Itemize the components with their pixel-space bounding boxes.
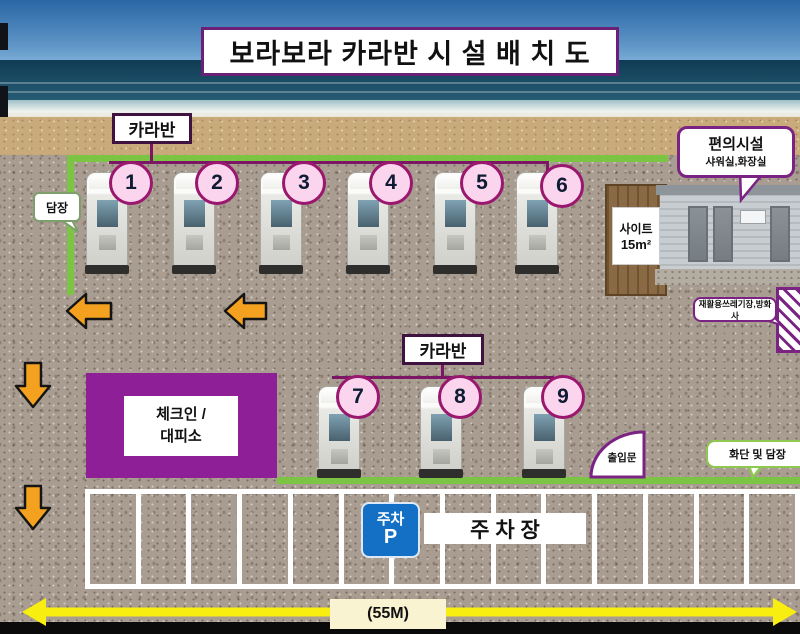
fence-line-lower bbox=[277, 477, 800, 484]
facilities-building-roof bbox=[656, 185, 800, 195]
parking-divider bbox=[795, 494, 800, 584]
photo-edge-artifact bbox=[0, 23, 8, 50]
measure-label: (55M) bbox=[330, 599, 446, 629]
checkin-line2: 대피소 bbox=[160, 426, 201, 449]
facilities-bubble-sub: 샤워실,화장실 bbox=[706, 154, 767, 169]
caravan-number-badge: 2 bbox=[195, 161, 239, 205]
caravan-number-badge: 5 bbox=[460, 161, 504, 205]
parking-divider bbox=[288, 494, 293, 584]
checkin-shelter-label: 체크인 / 대피소 bbox=[124, 396, 238, 456]
page-title: 보라보라 카라반 시 설 배 치 도 bbox=[201, 27, 619, 76]
caravan-number-badge: 3 bbox=[282, 161, 326, 205]
caravan-number-badge: 4 bbox=[369, 161, 413, 205]
parking-divider bbox=[744, 494, 749, 584]
site-label-text: 사이트 bbox=[619, 220, 652, 237]
parking-sign-letter: P bbox=[384, 527, 397, 548]
site-size-label: 사이트 15m² bbox=[612, 207, 660, 265]
parking-divider bbox=[592, 494, 597, 584]
parking-sign-text: 주차 bbox=[377, 512, 405, 528]
parking-lot-label: 주 차 장 bbox=[424, 513, 586, 544]
facility-layout-diagram: 보라보라 카라반 시 설 배 치 도 카라반 1 2 3 4 5 6 사이트 1… bbox=[0, 0, 800, 634]
photo-edge-artifact bbox=[0, 86, 8, 117]
fence-line-left bbox=[67, 155, 74, 295]
site-size-text: 15m² bbox=[621, 237, 651, 252]
flowerbed-bubble: 화단 및 담장 bbox=[706, 440, 800, 468]
parking-divider bbox=[237, 494, 242, 584]
facilities-bubble-title: 편의시설 bbox=[708, 136, 763, 154]
caravan-row2-label: 카라반 bbox=[402, 334, 484, 365]
facilities-door bbox=[770, 206, 790, 262]
parking-divider bbox=[339, 494, 344, 584]
facilities-door bbox=[688, 206, 708, 262]
facilities-base bbox=[655, 269, 800, 285]
caravan-number-badge: 8 bbox=[438, 375, 482, 419]
facilities-door bbox=[713, 206, 733, 262]
recycle-bubble: 재활용쓰레기장,방화사 bbox=[693, 297, 777, 322]
checkin-line1: 체크인 / bbox=[156, 404, 206, 427]
caravan-number-badge: 7 bbox=[336, 375, 380, 419]
caravan-row1-label: 카라반 bbox=[112, 113, 192, 144]
facilities-vent bbox=[740, 210, 766, 224]
recycle-zone-hatched bbox=[776, 287, 800, 353]
entrance-label: 출입문 bbox=[599, 450, 645, 465]
facilities-bubble: 편의시설 샤워실,화장실 bbox=[677, 126, 795, 178]
parking-divider bbox=[85, 494, 90, 584]
parking-sign: 주차 P bbox=[361, 502, 420, 558]
parking-divider bbox=[643, 494, 648, 584]
caravan-number-badge: 1 bbox=[109, 161, 153, 205]
caravan-number-badge: 6 bbox=[540, 164, 584, 208]
parking-divider bbox=[694, 494, 699, 584]
fence-bubble: 담장 bbox=[33, 192, 81, 222]
caravan-number-badge: 9 bbox=[541, 375, 585, 419]
parking-divider bbox=[136, 494, 141, 584]
parking-divider bbox=[186, 494, 191, 584]
